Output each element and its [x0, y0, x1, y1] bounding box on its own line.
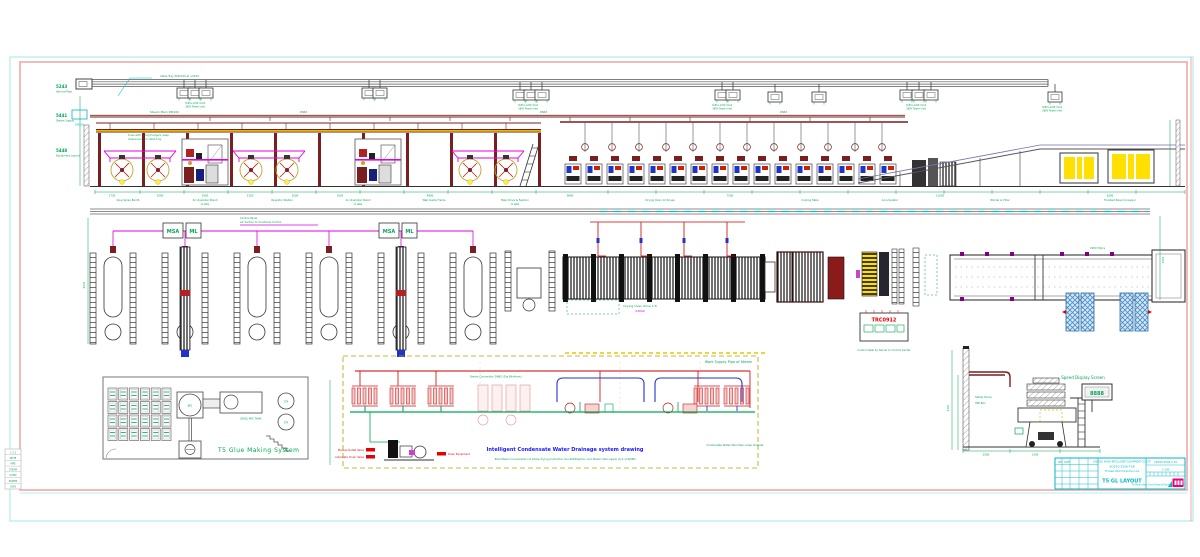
hmi-note: HMI Box [975, 401, 986, 405]
dim-label: 11000 [936, 194, 945, 198]
jbox-sub: 380V Power Inlet [1042, 110, 1062, 113]
glue-room-title: T5 Glue Making System [217, 447, 300, 454]
roller-stack [1027, 378, 1065, 406]
level-label-3: Equipment Layout [56, 154, 80, 158]
pipe-drops [585, 122, 882, 152]
drain-pump-unit [384, 440, 434, 460]
module-box-label: MSA [383, 229, 396, 235]
trc-note: Control Desk by Server to Control Center [857, 348, 911, 352]
dim-label: 1730 [109, 194, 116, 198]
title-block: REV DATE JIANGSU XINDA INTELLIGENT EQUIP… [1055, 458, 1185, 489]
line-elevation [80, 96, 1185, 187]
machine-caption: Main Drive & Festoon [501, 198, 529, 202]
left-wall [84, 125, 89, 186]
machine-caption: Cooling Table [801, 198, 819, 202]
level-code-3: 5448 [56, 148, 67, 153]
tank-label: JRG [187, 404, 193, 408]
fence-note: Safety Fence [975, 395, 992, 399]
steam-schematic: Work Supply Pipe of Steam Steam Connecti… [335, 356, 764, 468]
machine-caption: Winder & Tilter [990, 198, 1010, 202]
machine-body [1018, 408, 1076, 422]
display-readout: 8888 [1090, 391, 1104, 397]
machine-caption: Accumulator [882, 198, 899, 202]
unwinder [276, 155, 298, 184]
dim-label: 2150 [247, 194, 254, 198]
level-label-1: Service Pipe [56, 90, 72, 94]
steam-branch: DN65 [540, 110, 548, 114]
conveyor-label: 1950 T2pcs [1090, 246, 1106, 250]
sets-note: (2 sets) [201, 203, 210, 206]
tank3-label: STR [284, 422, 289, 425]
magenta-troughs [104, 151, 524, 162]
junction-box [924, 82, 938, 103]
schematic-top-label: Work Supply Pipe of Steam [705, 360, 753, 364]
platform-ladder [1070, 398, 1090, 447]
steam-main: Steam Main DN100 DN65 DN65 DN65 [90, 110, 905, 121]
dim-label: 3500 [292, 194, 299, 198]
rev-label: REV [1058, 461, 1063, 464]
drawing-number: XD250-2506-2-01 [1154, 460, 1177, 464]
dim-label: 4800 [427, 194, 434, 198]
module-box-label: ML [189, 229, 198, 235]
mixer-label: 2000L MIX TANK [240, 417, 262, 421]
branch-label: Steam Connection DN65 (Dia 89x4mm) [470, 375, 521, 379]
project-code: XD250-2506-TSB [1109, 465, 1134, 469]
sets-note: (2 sets) [511, 203, 520, 206]
unwinder [111, 155, 133, 184]
jbox-sub: 380V Power Inlet [518, 108, 538, 111]
junction-box [373, 80, 387, 101]
pipe-note-2: truss with spring hangers, keep [128, 133, 169, 137]
top-dimension-chain: 1730 3500 3500 2150 3500 3500 4800 9600 … [95, 190, 1185, 206]
legend-row: PIPE [11, 463, 16, 466]
cooling-section [777, 252, 823, 302]
right-wall [1176, 120, 1180, 186]
control-note: Control Panel [240, 216, 257, 220]
steam-tag-box [72, 110, 87, 119]
legend-row: SIGN [10, 486, 16, 489]
junction-box [726, 82, 740, 103]
date-label: DATE [1064, 461, 1071, 464]
dim-label: 3100 [1032, 453, 1039, 457]
condensate-loop [557, 378, 644, 402]
access-ladder [520, 144, 539, 186]
dim-label: 3500 [337, 194, 344, 198]
junction-box [199, 80, 213, 101]
dim-label: 9600 [567, 194, 574, 198]
tray-label: Cable Tray 400x150 at +5243 [160, 74, 199, 78]
dark-unit [928, 158, 938, 186]
valve-label-3: Drain Equipment [448, 452, 470, 456]
company-name: JIANGSU XINDA INTELLIGENT EQUIPMENT CO.,… [1092, 461, 1150, 464]
unwinder [147, 155, 169, 184]
cable-tray: Cable Tray 400x150 at +5243 3x95+1x50 mm… [76, 74, 1063, 113]
unwinder [495, 155, 517, 184]
condensate-right-label: Condensate Water Main Pipe Lower Drainle… [706, 443, 763, 447]
vert-dim: 3100 [946, 404, 950, 411]
jbox-sub: 380V Power Inlet [712, 108, 732, 111]
cad-drawing-canvas: 5243 Service Pipe 5441 Steam Supply 5448… [0, 0, 1200, 557]
tank2-label: GTK [284, 401, 289, 404]
speed-display-label: Speed Display Screen [1061, 375, 1105, 380]
machine-caption: Glue Spray Booth [117, 198, 140, 202]
trc-control-box: TRC0912 Control Desk by Server to Contro… [857, 310, 911, 352]
red-unit [828, 257, 844, 299]
sets-note: (2 sets) [354, 203, 363, 206]
agitator-frame [220, 392, 262, 413]
cad-drawing: 5243 Service Pipe 5441 Steam Supply 5448… [0, 0, 1200, 557]
left-margin-labels: 5243 Service Pipe 5441 Steam Supply 5448… [56, 84, 173, 158]
oven-dim: 24000 [635, 309, 645, 313]
project-subtitle: T5 Glass Wool Production Line [1105, 470, 1140, 473]
valve-label-1: Manual Outlet Valve [338, 448, 365, 452]
legend-row: 1 2 3 [10, 451, 16, 454]
machine-caption: Drying Oven 12 Zones [645, 198, 675, 202]
unwinder [240, 155, 262, 184]
tray-head-box [76, 79, 92, 89]
schematic-title: Intelligent Condensate Water Drainage sy… [487, 447, 644, 453]
speed-display-machine: 3100 Safety Fence HMI Box Speed Display … [946, 346, 1112, 457]
wall-section [963, 348, 969, 450]
legend-table: 1 2 3 NOTE PIPE STEAM COND POWER SIGN [5, 449, 21, 489]
unwind-modules [90, 231, 496, 357]
machine-caption: 2x Unwinder Stand [346, 198, 371, 202]
dim-label: 7500 [727, 194, 734, 198]
accumulator [862, 252, 877, 296]
machine-caption: Finished Panel Conveyor [1104, 198, 1137, 202]
dim-label: 6200 [1107, 194, 1114, 198]
drying-oven: Drying Oven Zone 1-8 24000 [563, 222, 775, 314]
level-code-1: 5243 [56, 84, 67, 89]
steam-tag: DN100 [75, 123, 84, 127]
schematic-caption: Total Steam Consumption of whole drying … [494, 457, 636, 461]
dim-label: 3500 [157, 194, 164, 198]
glue-room: JRG 2000L MIX TANK GTK STR T5 Glue Makin… [103, 377, 330, 465]
condensate-loop [655, 378, 742, 402]
faded-equipment [478, 385, 530, 411]
drop-circles [582, 144, 886, 151]
dim-label: 3500 [202, 194, 209, 198]
striped-column [396, 247, 406, 350]
machine-caption: Operator Station [271, 198, 293, 202]
steam-branch: DN65 [300, 110, 308, 114]
striped-column [180, 247, 190, 350]
side-dim: 2500 [1161, 256, 1165, 263]
junction-box [768, 84, 782, 105]
legend-row: NOTE [10, 457, 17, 460]
module-box-label: MSA [167, 229, 180, 235]
junction-box [1048, 84, 1062, 105]
control-note: Air Suction to Condense Control [240, 220, 282, 224]
operator-station [355, 139, 401, 185]
steam-label: Steam Main DN100 [150, 110, 179, 114]
steam-branch: DN65 [780, 110, 788, 114]
module-box-label: ML [405, 229, 414, 235]
legend-row: STEAM [9, 468, 17, 471]
unwinder [459, 155, 481, 184]
valve-label-2: Automatic Drain Valve [335, 455, 364, 459]
festoon-row [565, 156, 896, 184]
left-dim: 6000 [82, 281, 86, 288]
drawing-scale: 1:100 [1162, 468, 1170, 472]
machine-caption: 2x Unwinder Stand [193, 198, 218, 202]
legend-row: COND [10, 474, 17, 477]
level-code-2: 5441 [56, 113, 67, 118]
junction-box [812, 84, 826, 105]
trc-code: TRC0912 [872, 318, 897, 324]
jbox-sub: 380V Power Inlet [185, 106, 205, 109]
oven-label: Drying Oven Zone 1-8 [623, 304, 656, 308]
dim-label: 2500 [983, 453, 990, 457]
radiator-group [724, 386, 750, 411]
legend-row: POWER [9, 480, 18, 483]
operator-station [182, 139, 228, 185]
plan-view-band: 6000 [82, 209, 1185, 357]
jbox-sub: 380V Power Inlet [906, 108, 926, 111]
machine-caption: Web Guide Frame [422, 198, 445, 202]
junction-box [535, 82, 549, 103]
